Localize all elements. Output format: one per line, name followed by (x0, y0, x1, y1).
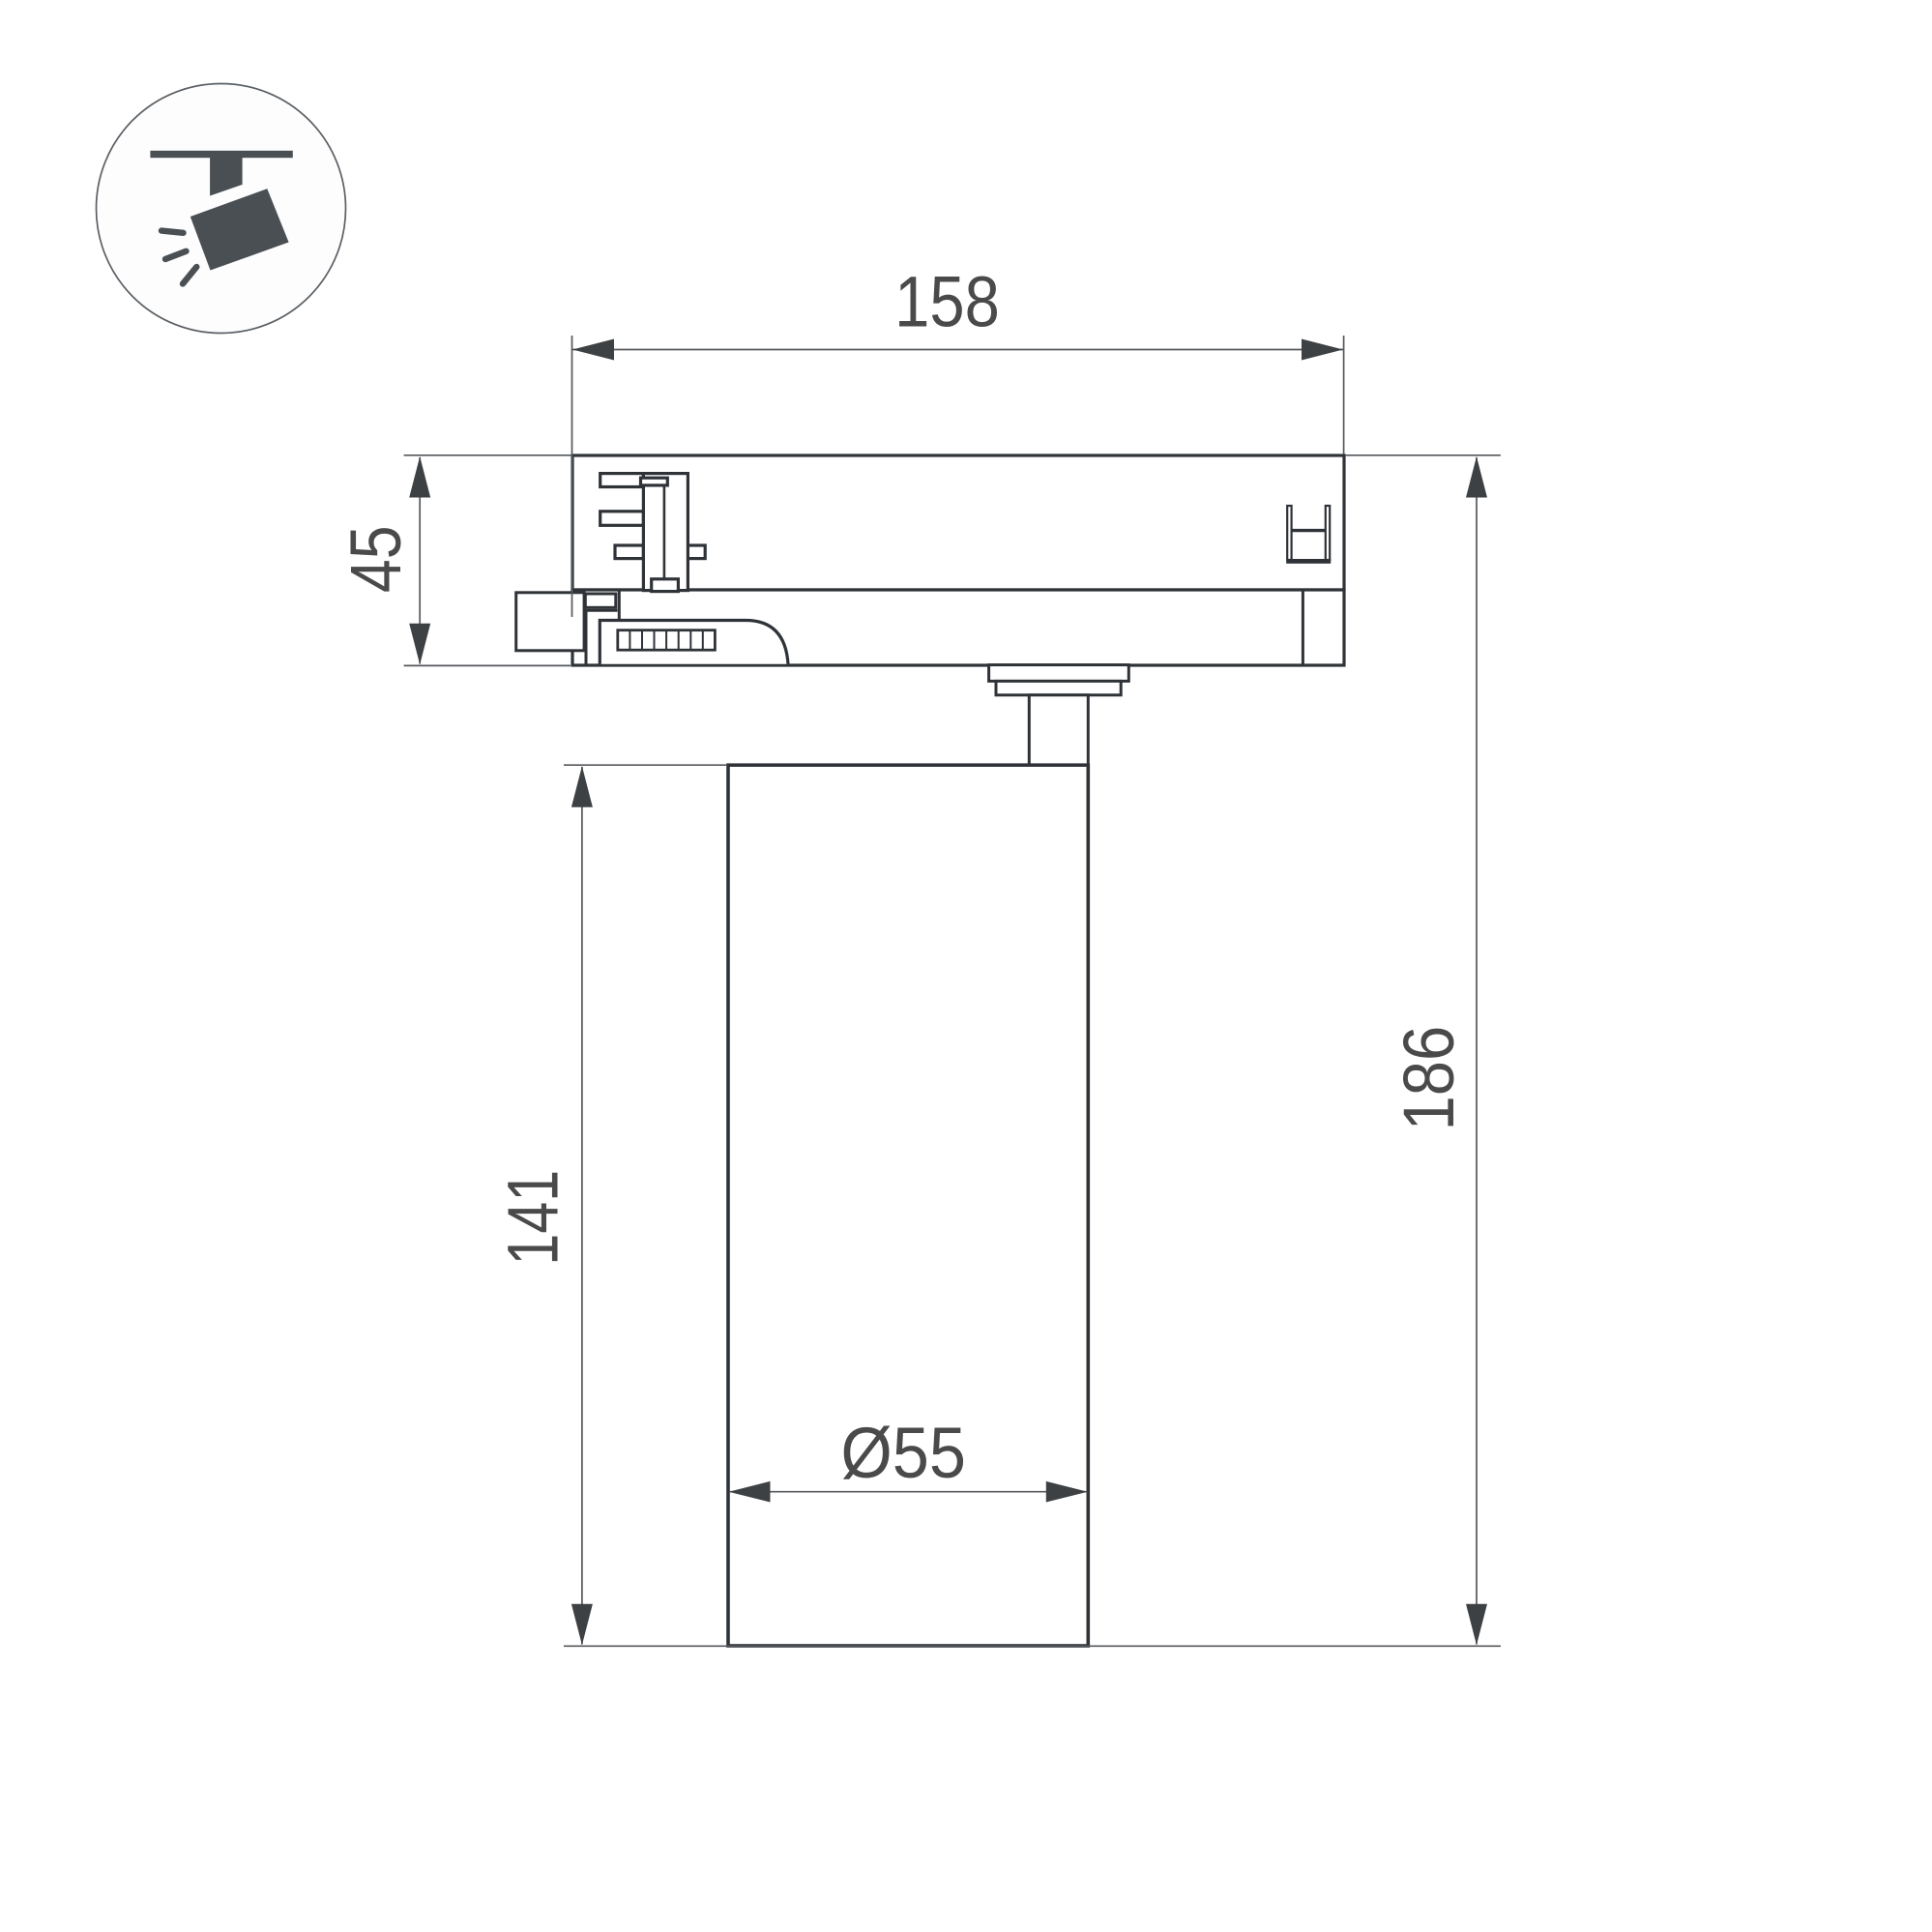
svg-text:45: 45 (336, 525, 416, 593)
svg-text:158: 158 (894, 262, 1000, 342)
svg-text:141: 141 (493, 1170, 573, 1266)
svg-text:186: 186 (1389, 1026, 1469, 1131)
svg-text:Ø55: Ø55 (841, 1414, 966, 1494)
